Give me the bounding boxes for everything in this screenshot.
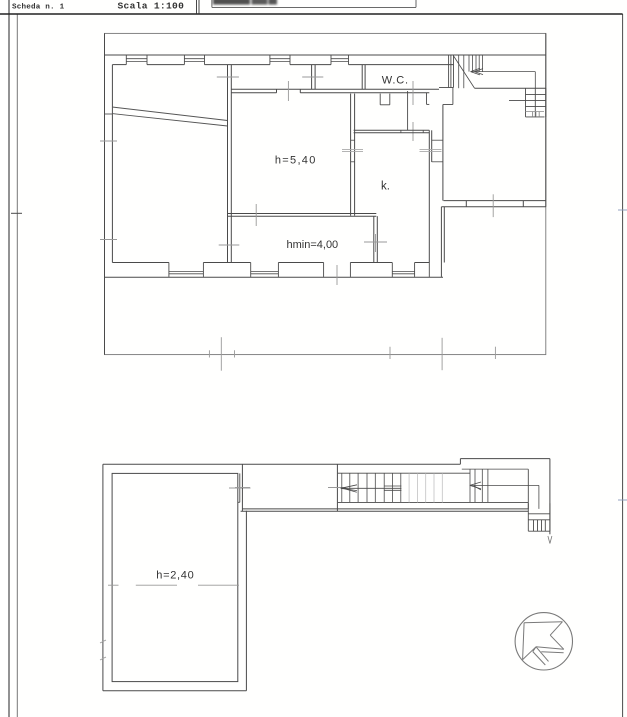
svg-text:Scheda n. 1: Scheda n. 1	[12, 3, 65, 11]
svg-text:hmin=4,00: hmin=4,00	[287, 239, 339, 251]
svg-text:h=5,40: h=5,40	[275, 154, 317, 166]
svg-text:Scala 1:100: Scala 1:100	[118, 1, 185, 12]
svg-text:W.C.: W.C.	[382, 74, 409, 86]
svg-text:k.: k.	[381, 181, 390, 193]
svg-text:h=2,40: h=2,40	[156, 570, 194, 582]
